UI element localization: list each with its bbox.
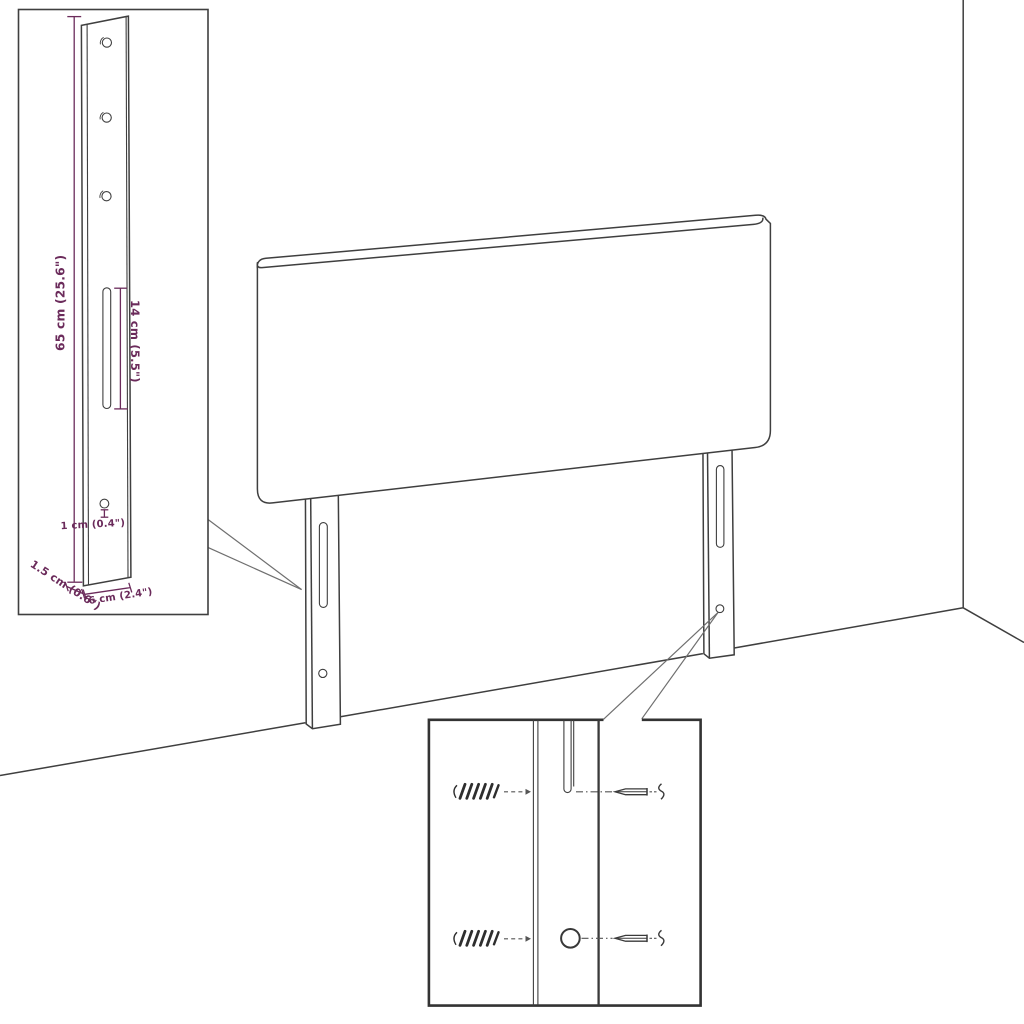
headboard-outline <box>257 215 770 503</box>
screw-callout <box>604 613 718 720</box>
floor-line-right <box>963 608 1024 643</box>
bracket-height-label: 65 cm (25.6") <box>54 255 68 351</box>
bracket-callout <box>208 520 301 590</box>
slot-length-label: 14 cm (5.5") <box>128 300 142 383</box>
headboard <box>257 215 770 503</box>
floor-line-left-1 <box>0 723 305 776</box>
diagram-canvas: 65 cm (25.6") 14 cm (5.5") 1 cm (0.4") 1… <box>0 0 1024 1024</box>
floor-line-left-2 <box>340 654 703 717</box>
headboard-diagram: 65 cm (25.6") 14 cm (5.5") 1 cm (0.4") 1… <box>0 0 1024 1024</box>
screw-detail-inset <box>429 720 701 1006</box>
bracket-detail-inset: 65 cm (25.6") 14 cm (5.5") 1 cm (0.4") 1… <box>19 10 209 615</box>
leg-hole-zoom <box>561 929 580 948</box>
right-leg <box>703 437 734 658</box>
floor-line-left-3 <box>734 608 963 648</box>
left-leg <box>305 482 340 729</box>
